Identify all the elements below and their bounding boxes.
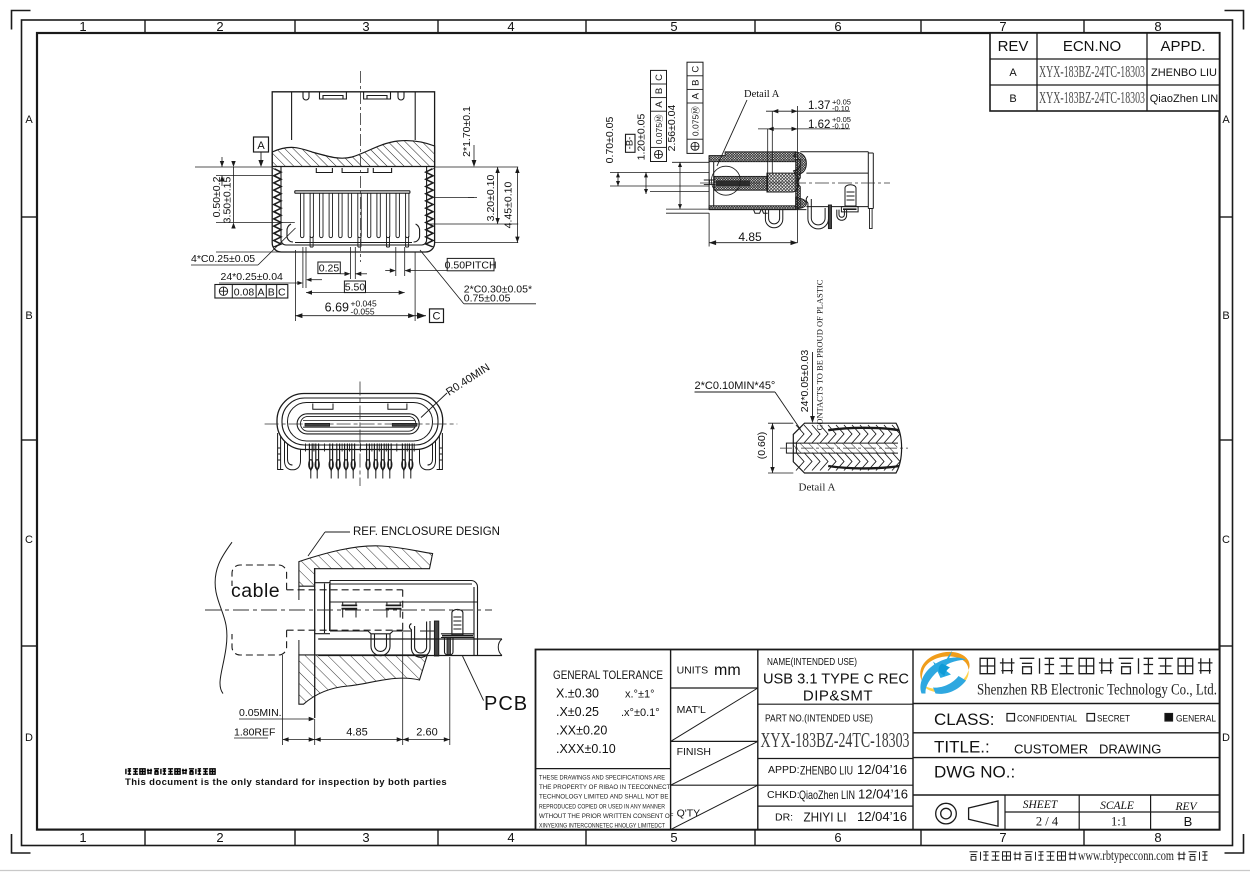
svg-text:-B-: -B-	[625, 137, 636, 150]
svg-text:REPRODUCED COPIED OR USED IN A: REPRODUCED COPIED OR USED IN ANY MANNER	[539, 803, 665, 810]
svg-text:3: 3	[362, 830, 369, 845]
svg-text:XYX-183BZ-24TC-18303: XYX-183BZ-24TC-18303	[761, 728, 910, 752]
svg-text:REV: REV	[1174, 801, 1198, 813]
svg-text:CUSTOMER: CUSTOMER	[1014, 742, 1088, 757]
svg-text:1.20±0.05: 1.20±0.05	[636, 114, 648, 161]
svg-text:REV: REV	[998, 38, 1029, 55]
svg-text:REF. ENCLOSURE DESIGN: REF. ENCLOSURE DESIGN	[353, 526, 500, 538]
svg-text:MAT'L: MAT'L	[677, 704, 706, 716]
svg-text:WTHOUT THE PRIOR WRITTEN CONS: WTHOUT THE PRIOR WRITTEN CONSENT OF	[539, 813, 674, 820]
svg-text:B: B	[1184, 814, 1193, 829]
svg-text:2: 2	[216, 830, 223, 845]
svg-text:DIP&SMT: DIP&SMT	[803, 688, 873, 705]
svg-text:0.08: 0.08	[234, 286, 255, 298]
svg-text:QiaoZhen LIN: QiaoZhen LIN	[799, 788, 855, 802]
svg-text:7: 7	[999, 19, 1006, 34]
svg-text:www.rbtypecconn.com: www.rbtypecconn.com	[1078, 848, 1174, 863]
svg-text:C: C	[25, 534, 33, 546]
svg-text:2.56±0.04: 2.56±0.04	[666, 105, 678, 152]
svg-text:B: B	[25, 310, 32, 322]
svg-text:ZHIYI LI: ZHIYI LI	[804, 810, 847, 825]
svg-text:0.25: 0.25	[319, 262, 340, 274]
svg-text:FINISH: FINISH	[677, 746, 711, 758]
svg-text:SECRET: SECRET	[1097, 714, 1130, 724]
svg-text:0.70±0.05: 0.70±0.05	[604, 117, 616, 164]
svg-text:CLASS:: CLASS:	[934, 710, 994, 729]
svg-text:C: C	[691, 66, 702, 73]
svg-text:DRAWING: DRAWING	[1099, 742, 1161, 757]
svg-text:4.45±0.10: 4.45±0.10	[503, 182, 515, 229]
svg-text:24*0.25±0.04: 24*0.25±0.04	[221, 271, 284, 283]
svg-text:DWG NO.:: DWG NO.:	[934, 763, 1015, 782]
svg-text:12/04’16: 12/04’16	[857, 763, 907, 777]
svg-text:USB 3.1 TYPE C REC: USB 3.1 TYPE C REC	[763, 671, 909, 688]
svg-text:(0.60): (0.60)	[756, 432, 768, 459]
svg-text:.X±0.25: .X±0.25	[556, 705, 599, 719]
svg-text:B: B	[654, 88, 665, 94]
svg-text:1: 1	[79, 19, 86, 34]
svg-text:A: A	[257, 286, 264, 298]
svg-text:1: 1	[79, 830, 86, 845]
svg-text:C: C	[278, 286, 286, 298]
svg-text:2: 2	[216, 19, 223, 34]
svg-text:C: C	[433, 311, 441, 323]
svg-text:1.80REF: 1.80REF	[234, 727, 275, 739]
svg-text:Shenzhen RB Electronic Technol: Shenzhen RB Electronic Technology Co., L…	[977, 682, 1217, 699]
svg-text:X.±0.30: X.±0.30	[556, 687, 599, 701]
svg-text:CONTACTS TO BE PROUD OF PLASTI: CONTACTS TO BE PROUD OF PLASTIC	[815, 279, 825, 430]
svg-text:0.075Ⓜ: 0.075Ⓜ	[691, 106, 701, 136]
svg-text:4.85: 4.85	[346, 727, 367, 739]
svg-text:5: 5	[670, 830, 677, 845]
svg-text:APPD.: APPD.	[1160, 38, 1205, 55]
svg-text:6.69: 6.69	[325, 301, 349, 315]
svg-text:ZHENBO LIU: ZHENBO LIU	[800, 764, 853, 778]
svg-text:3.50±0.15: 3.50±0.15	[222, 177, 234, 224]
svg-text:4: 4	[507, 19, 514, 34]
svg-text:CHKD:: CHKD:	[767, 789, 800, 801]
svg-text:This document is the only: This document is the only standard for i…	[125, 777, 447, 788]
svg-text:0.50PITCH: 0.50PITCH	[445, 259, 497, 271]
svg-text:0.75±0.05: 0.75±0.05	[464, 293, 511, 305]
svg-text:TITLE.:: TITLE.:	[934, 738, 990, 757]
svg-text:GENERAL TOLERANCE: GENERAL TOLERANCE	[553, 670, 663, 682]
svg-text:5.50: 5.50	[345, 281, 366, 293]
svg-text:DR:: DR:	[775, 812, 793, 824]
svg-text:2*1.70±0.1: 2*1.70±0.1	[461, 106, 473, 157]
svg-text:SHEET: SHEET	[1023, 799, 1059, 811]
svg-text:TECHNOLOGY LIMITED AND SHALL N: TECHNOLOGY LIMITED AND SHALL NOT BE	[539, 794, 669, 801]
svg-text:3: 3	[362, 19, 369, 34]
svg-text:24*0.05±0.03: 24*0.05±0.03	[799, 350, 811, 413]
svg-text:2 / 4: 2 / 4	[1036, 815, 1059, 829]
svg-text:2.60: 2.60	[416, 727, 437, 739]
svg-text:NAME(INTENDED USE): NAME(INTENDED USE)	[767, 657, 857, 668]
svg-text:4.85: 4.85	[738, 230, 762, 244]
svg-text:5: 5	[670, 19, 677, 34]
svg-text:-0.055: -0.055	[351, 307, 375, 317]
svg-text:6: 6	[834, 19, 841, 34]
svg-text:D: D	[1222, 732, 1230, 744]
svg-text:0.075Ⓜ: 0.075Ⓜ	[654, 114, 664, 144]
svg-text:Q'TY: Q'TY	[677, 808, 701, 820]
svg-text:A: A	[1009, 67, 1017, 79]
svg-text:CONFIDENTIAL: CONFIDENTIAL	[1017, 714, 1077, 724]
svg-text:A: A	[654, 101, 665, 108]
svg-text:B: B	[1009, 93, 1016, 105]
svg-text:UNITS: UNITS	[677, 665, 709, 677]
svg-text:12/04’16: 12/04’16	[857, 810, 907, 824]
svg-text:B: B	[268, 286, 275, 298]
svg-text:7: 7	[999, 830, 1006, 845]
svg-text:.x°±0.1°: .x°±0.1°	[621, 707, 660, 719]
svg-text:12/04’16: 12/04’16	[858, 788, 908, 802]
svg-text:cable: cable	[231, 580, 280, 602]
svg-text:SCALE: SCALE	[1100, 800, 1134, 812]
svg-text:B: B	[1222, 310, 1229, 322]
svg-text:2*C0.10MIN*45°: 2*C0.10MIN*45°	[695, 380, 776, 392]
svg-text:XYX-183BZ-24TC-18303: XYX-183BZ-24TC-18303	[1039, 88, 1145, 107]
svg-text:Detail A: Detail A	[799, 482, 836, 494]
svg-text:PCB: PCB	[484, 693, 528, 715]
svg-text:B: B	[691, 80, 702, 86]
svg-text:8: 8	[1154, 830, 1161, 845]
svg-text:4*C0.25±0.05: 4*C0.25±0.05	[191, 253, 255, 265]
svg-text:6: 6	[834, 830, 841, 845]
svg-text:4: 4	[507, 830, 514, 845]
svg-text:XYX-183BZ-24TC-18303: XYX-183BZ-24TC-18303	[1039, 62, 1145, 81]
svg-text:Detail A: Detail A	[744, 89, 780, 100]
svg-text:A: A	[257, 140, 265, 152]
svg-text:D: D	[25, 732, 33, 744]
svg-text:.XXX±0.10: .XXX±0.10	[556, 742, 616, 756]
svg-text:C: C	[1222, 534, 1230, 546]
svg-text:XINYEXING INTERCONNETEC HNOLGY: XINYEXING INTERCONNETEC HNOLGY LIMITEDCT	[539, 823, 665, 830]
svg-text:A: A	[691, 92, 702, 99]
svg-text:3.20±0.10: 3.20±0.10	[485, 175, 497, 222]
svg-text:A: A	[25, 114, 33, 126]
svg-text:APPD:: APPD:	[768, 764, 800, 776]
svg-text:mm: mm	[714, 662, 741, 679]
svg-text:ECN.NO: ECN.NO	[1063, 38, 1121, 55]
svg-text:PART NO.(INTENDED USE): PART NO.(INTENDED USE)	[765, 714, 873, 725]
svg-text:THESE DRAWINGS AND SPECIFICATI: THESE DRAWINGS AND SPECIFICATIONS ARE	[539, 775, 665, 782]
svg-text:x.°±1°: x.°±1°	[625, 689, 655, 701]
svg-text:1:1: 1:1	[1111, 815, 1127, 829]
svg-text:ZHENBO LIU: ZHENBO LIU	[1151, 67, 1217, 79]
svg-text:1.37: 1.37	[808, 100, 830, 112]
svg-text:A: A	[1222, 114, 1230, 126]
svg-text:8: 8	[1154, 19, 1161, 34]
svg-text:0.05MIN.: 0.05MIN.	[239, 707, 282, 719]
svg-text:GENERAL: GENERAL	[1176, 714, 1216, 724]
svg-text:.XX±0.20: .XX±0.20	[556, 724, 607, 738]
svg-text:QiaoZhen LIN: QiaoZhen LIN	[1150, 93, 1219, 105]
svg-text:C: C	[654, 74, 665, 81]
svg-text:THE PROPERTY OF RIBAO IN TEECO: THE PROPERTY OF RIBAO IN TEECONNECT	[539, 784, 671, 791]
